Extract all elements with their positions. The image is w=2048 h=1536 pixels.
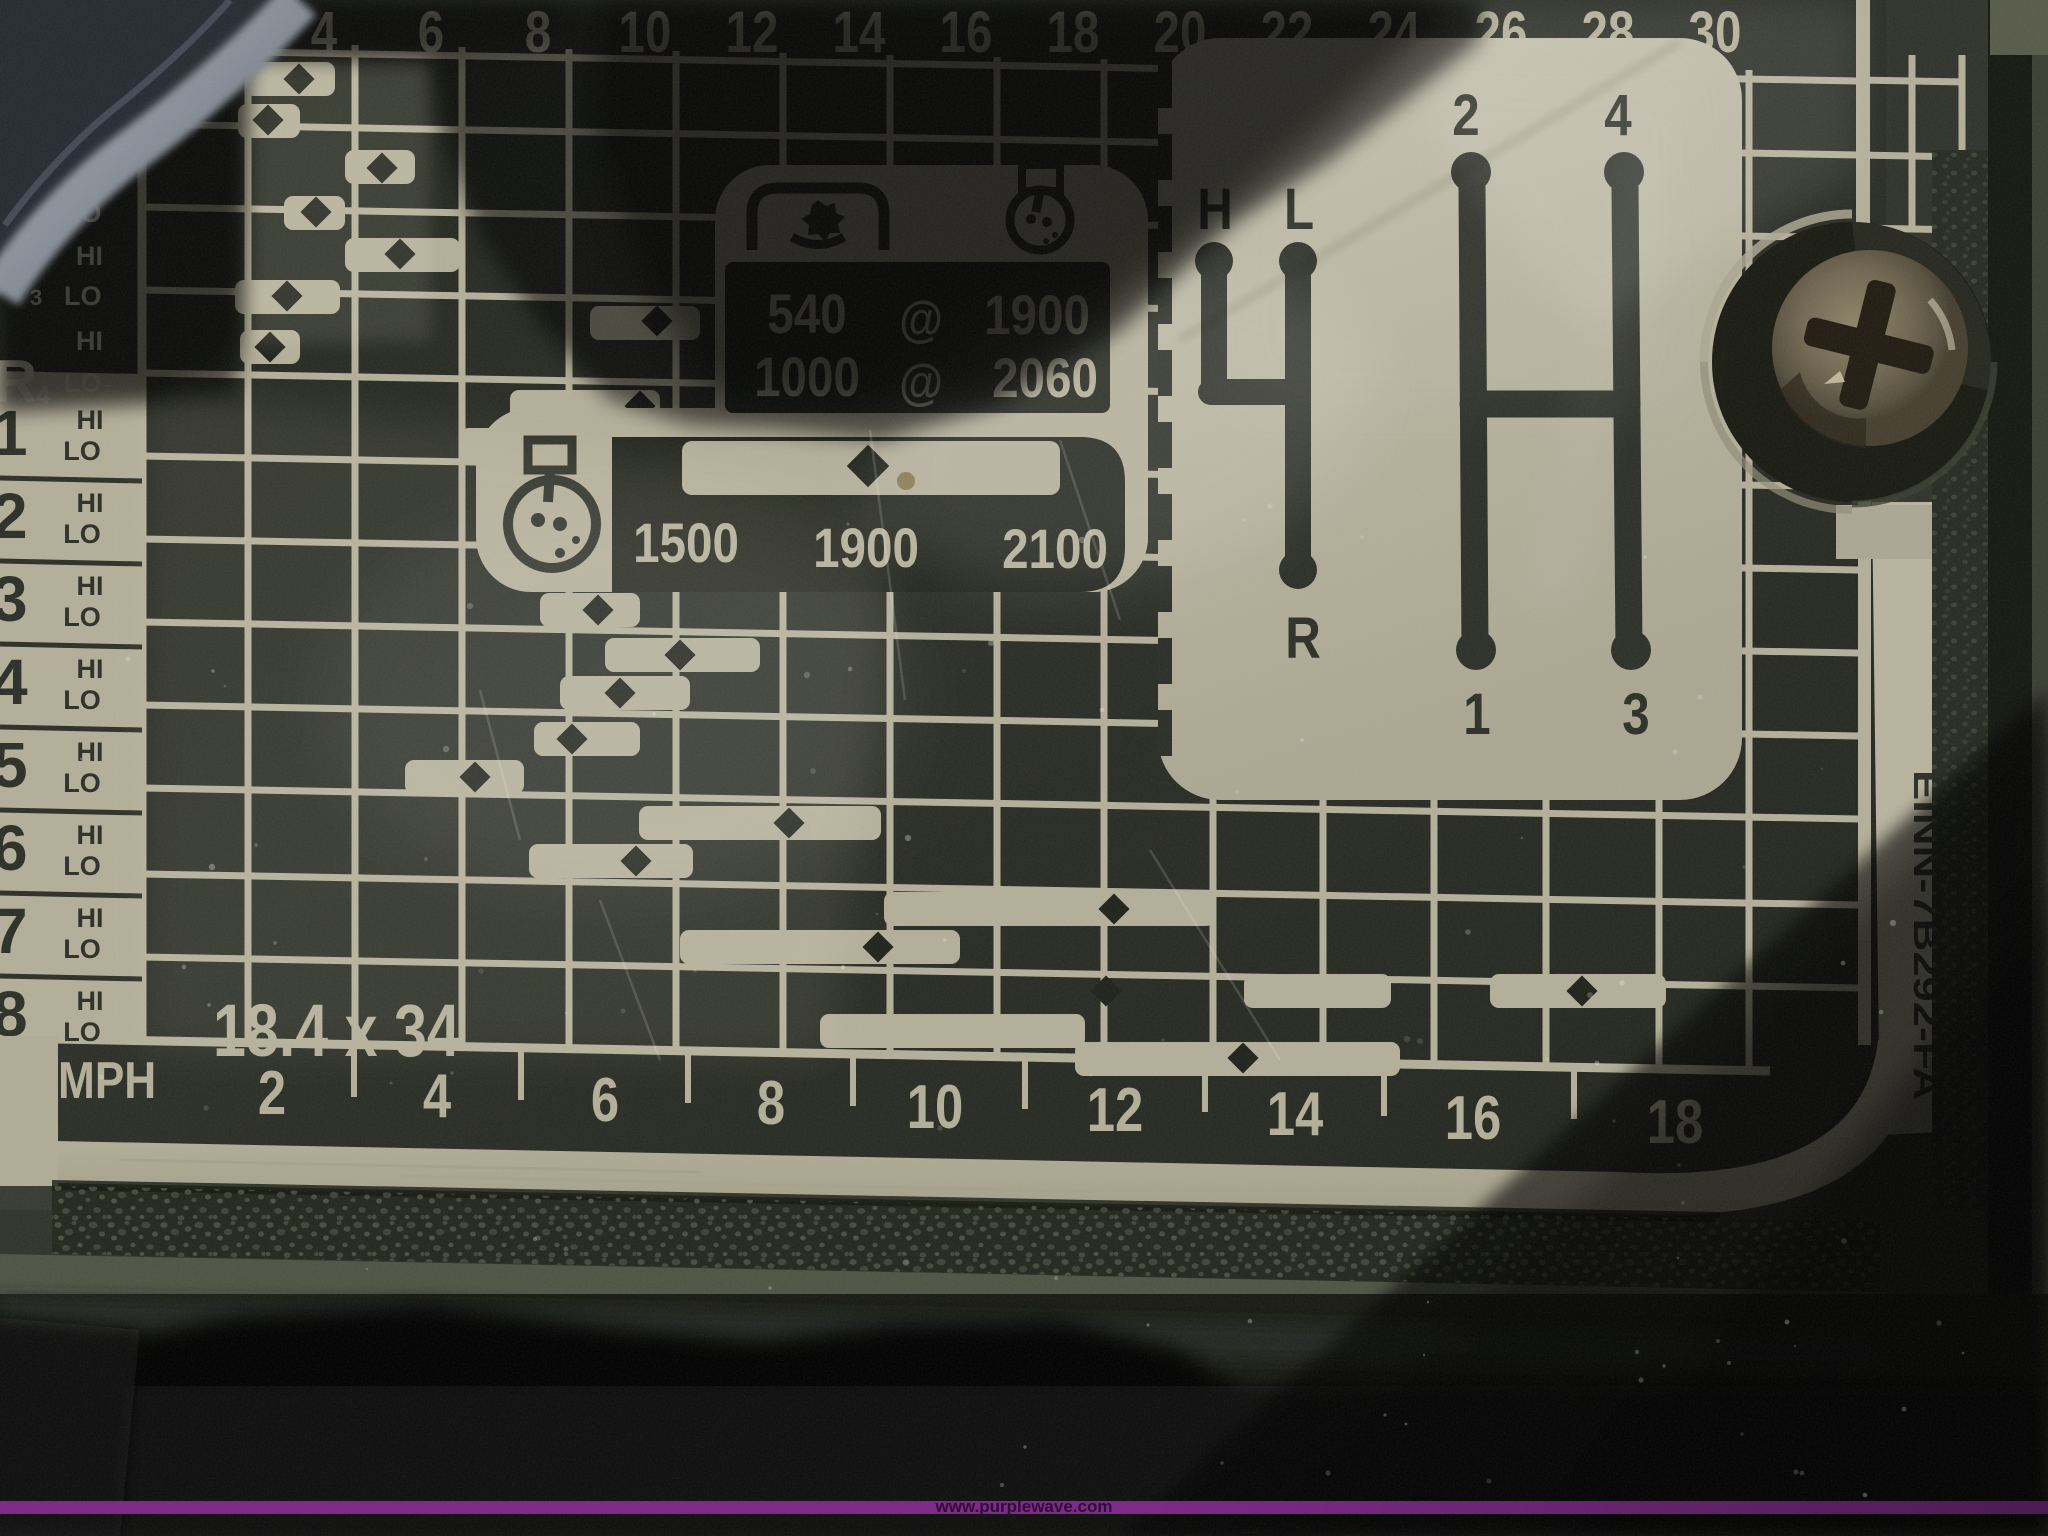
svg-text:www.purplewave.com: www.purplewave.com [935,1497,1113,1516]
